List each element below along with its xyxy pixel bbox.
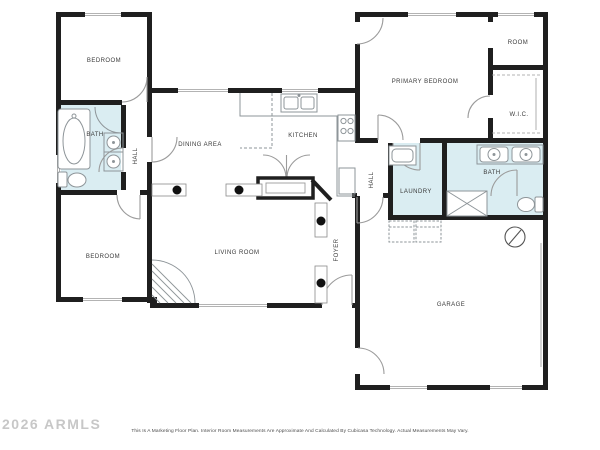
room-label-bath-right: BATH: [483, 170, 500, 176]
room-label-dining-area: DINING AREA: [178, 142, 222, 148]
pantry-closet: [258, 178, 313, 198]
room-label-kitchen: KITCHEN: [288, 133, 318, 139]
room-label-garage: GARAGE: [437, 302, 465, 308]
room-label-bedroom-bottom-left: BEDROOM: [86, 254, 120, 260]
utility-sink-icon: [389, 146, 416, 165]
room-label-living-room: LIVING ROOM: [215, 250, 260, 256]
column-icon: [152, 184, 327, 303]
kitchen-sink-icon: [281, 94, 317, 112]
toilet-icon: [518, 197, 544, 212]
toilet-icon: [58, 172, 86, 187]
room-label-room: ROOM: [508, 40, 528, 46]
room-label-laundry: LAUNDRY: [400, 189, 432, 195]
shower-pan-icon: [447, 191, 487, 216]
columns: [152, 184, 327, 303]
dryer-icon: [416, 221, 441, 242]
stove-icon: [338, 115, 355, 141]
refrigerator-icon: [339, 168, 355, 194]
garage-fixtures: [505, 227, 541, 367]
corner-fireplace-icon: [152, 260, 195, 303]
double-door-icon: [263, 155, 310, 178]
water-heater-icon: [505, 227, 525, 247]
floor-plan-canvas: BEDROOM BATH HALL BEDROOM DINING AREA KI…: [0, 0, 600, 450]
room-label-foyer: FOYER: [334, 239, 340, 262]
room-label-wic: W.I.C.: [509, 112, 528, 118]
bathtub-icon: [58, 109, 90, 169]
diagonal-wall: [312, 180, 331, 200]
floor-plan-drawing: [0, 0, 600, 450]
room-label-bedroom-top-left: BEDROOM: [87, 58, 121, 64]
washer-icon: [389, 221, 414, 242]
room-label-hall-left: HALL: [133, 148, 139, 165]
room-label-hall-right: HALL: [369, 172, 375, 189]
room-label-primary-bedroom: PRIMARY BEDROOM: [392, 79, 459, 85]
room-label-bath-left: BATH: [86, 132, 103, 138]
upper-cabinet-dashed: [240, 93, 272, 148]
disclaimer-text: This Is A Marketing Floor Plan. Interior…: [0, 429, 600, 434]
closet-rod-icon: [492, 75, 540, 133]
